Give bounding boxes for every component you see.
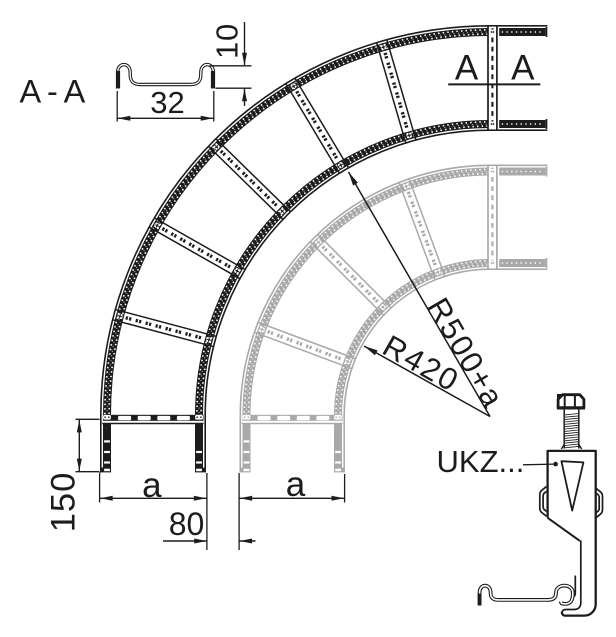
svg-text:UKZ...: UKZ...	[437, 444, 525, 479]
svg-text:32: 32	[150, 85, 184, 120]
svg-text:150: 150	[45, 472, 83, 533]
svg-text:a: a	[286, 465, 306, 504]
svg-text:A - A: A - A	[20, 74, 86, 110]
svg-text:80: 80	[169, 506, 205, 542]
svg-text:10: 10	[210, 23, 245, 59]
svg-text:a: a	[142, 466, 162, 505]
svg-text:A: A	[455, 49, 479, 88]
svg-text:A: A	[511, 49, 535, 88]
